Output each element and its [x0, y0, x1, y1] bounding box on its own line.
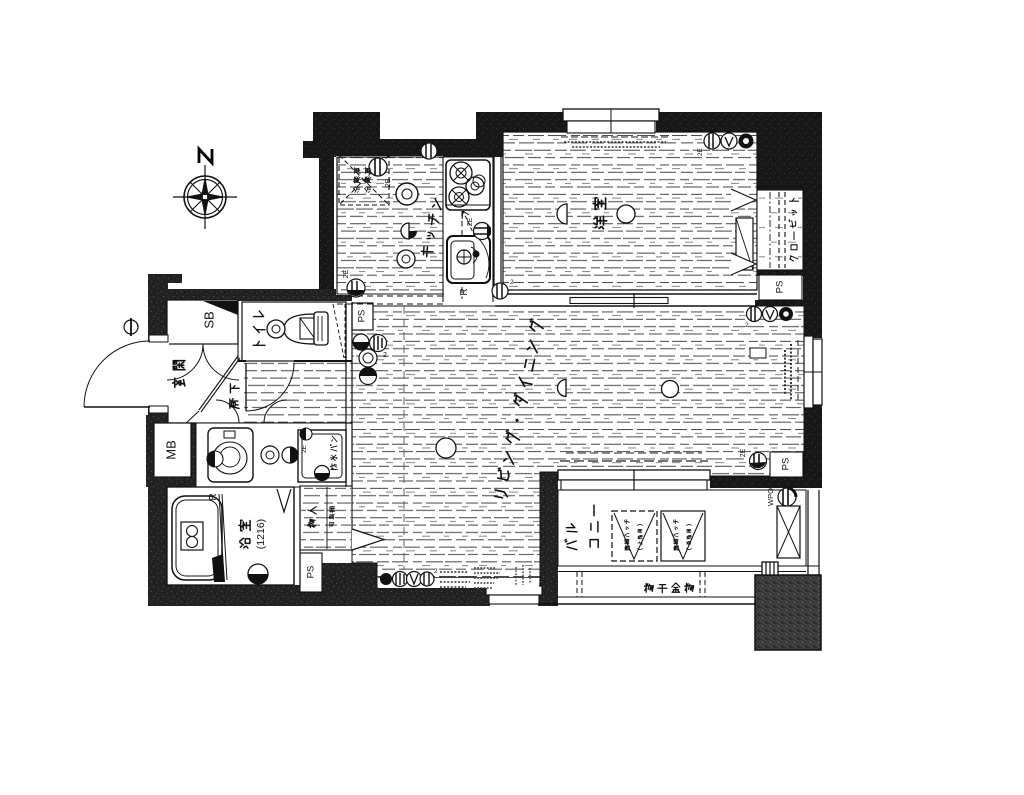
svg-text:R: R [208, 493, 219, 500]
svg-text:PS: PS [306, 566, 317, 579]
svg-text:PS: PS [357, 310, 368, 323]
svg-text:WPO: WPO [766, 488, 775, 506]
svg-text:R: R [459, 288, 470, 295]
svg-text:2: 2 [383, 352, 387, 359]
svg-text:2E: 2E [343, 269, 350, 278]
svg-text:MB: MB [163, 440, 178, 460]
svg-text:2E: 2E [467, 217, 474, 226]
svg-text:2: 2 [434, 568, 438, 575]
svg-text:(1216): (1216) [255, 519, 267, 549]
svg-text:2E: 2E [385, 178, 392, 187]
svg-text:2E: 2E [301, 444, 308, 453]
svg-text:SB: SB [201, 311, 216, 328]
svg-text:2: 2 [745, 322, 749, 329]
svg-text:2E: 2E [740, 448, 747, 457]
svg-text:PS: PS [781, 458, 792, 471]
svg-text:PS: PS [775, 281, 786, 294]
svg-text:2E: 2E [697, 147, 704, 156]
svg-text:2: 2 [510, 279, 514, 286]
